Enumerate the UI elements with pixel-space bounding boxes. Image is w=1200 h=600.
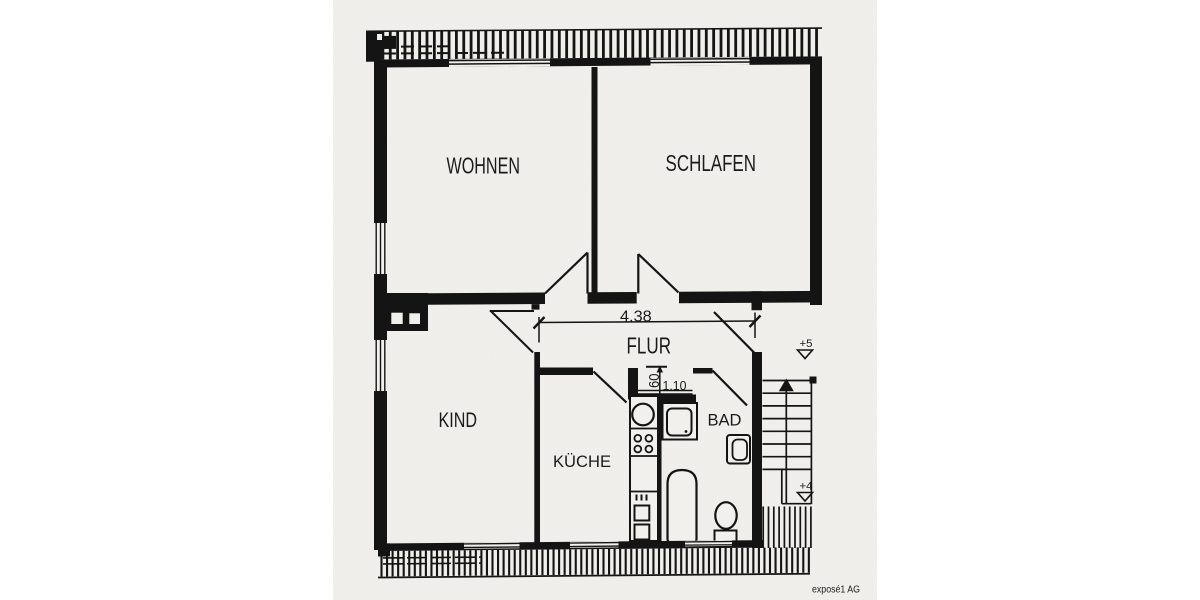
svg-text:60: 60 xyxy=(646,374,663,389)
svg-text:KÜCHE: KÜCHE xyxy=(553,453,611,471)
svg-text:BAD: BAD xyxy=(708,412,742,430)
svg-text:WOHNEN: WOHNEN xyxy=(447,153,521,179)
svg-text:+5: +5 xyxy=(800,338,813,350)
svg-text:1.10: 1.10 xyxy=(663,379,687,393)
svg-text:FLUR: FLUR xyxy=(627,333,672,359)
svg-text:KIND: KIND xyxy=(439,408,478,432)
svg-text:+4: +4 xyxy=(800,481,813,493)
svg-text:exposé1 AG: exposé1 AG xyxy=(812,585,860,596)
svg-text:4.38: 4.38 xyxy=(620,309,652,326)
svg-text:SCHLAFEN: SCHLAFEN xyxy=(666,150,757,176)
